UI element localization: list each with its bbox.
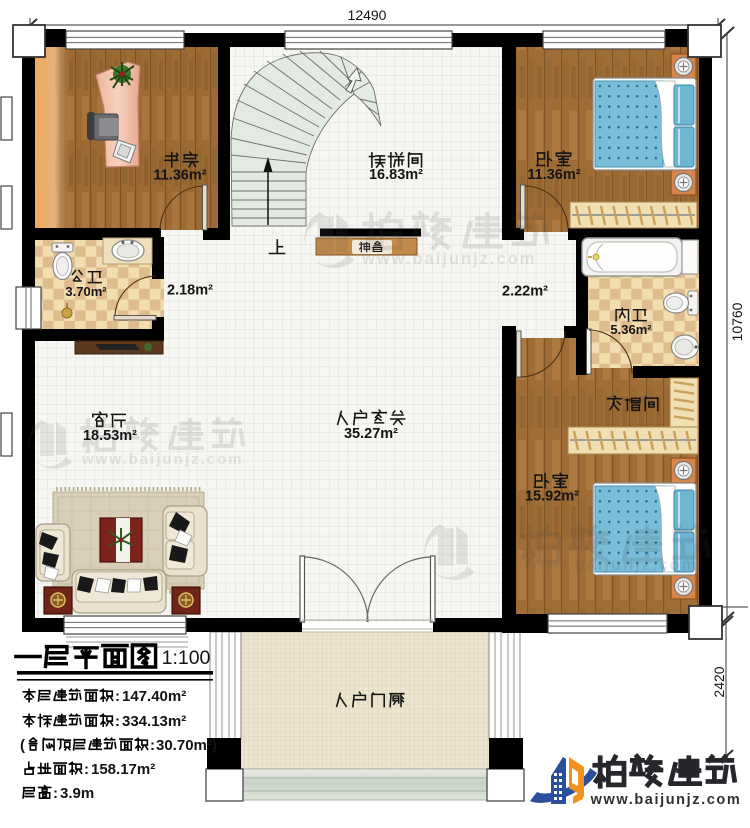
svg-text:334.13m²: 334.13m²: [122, 713, 186, 730]
svg-text:1:100: 1:100: [162, 647, 211, 669]
svg-text::: :: [115, 713, 120, 730]
svg-text:5.36m²: 5.36m²: [610, 322, 652, 337]
svg-text:2.22m²: 2.22m²: [502, 284, 548, 300]
svg-text:11.36m²: 11.36m²: [527, 167, 580, 183]
svg-text::: :: [115, 688, 120, 705]
svg-text:2420: 2420: [711, 666, 727, 697]
svg-text:2.18m²: 2.18m²: [167, 283, 213, 299]
svg-text:158.17m²: 158.17m²: [91, 761, 155, 778]
svg-text:(: (: [20, 737, 25, 754]
svg-text:11.36m²: 11.36m²: [153, 168, 206, 184]
svg-text:www.baijunjz.com: www.baijunjz.com: [361, 250, 536, 268]
svg-text:15.92m²: 15.92m²: [525, 489, 579, 505]
svg-text:30.70m²): 30.70m²): [156, 737, 217, 754]
svg-text:www.baijunjz.com: www.baijunjz.com: [81, 451, 243, 468]
svg-text:16.83m²: 16.83m²: [369, 167, 423, 183]
svg-text:35.27m²: 35.27m²: [344, 426, 398, 442]
svg-text::: :: [150, 737, 155, 754]
svg-text::: :: [53, 785, 58, 802]
svg-text:3.70m²: 3.70m²: [65, 284, 107, 299]
svg-text:147.40m²: 147.40m²: [122, 688, 186, 705]
svg-text:3.9m: 3.9m: [60, 785, 94, 802]
svg-text:www.baijunjz.com: www.baijunjz.com: [590, 792, 742, 808]
svg-text::: :: [84, 761, 89, 778]
svg-text:www.baijunjz.com: www.baijunjz.com: [523, 556, 698, 574]
svg-text:12490: 12490: [348, 7, 387, 23]
svg-text:10760: 10760: [729, 302, 745, 341]
